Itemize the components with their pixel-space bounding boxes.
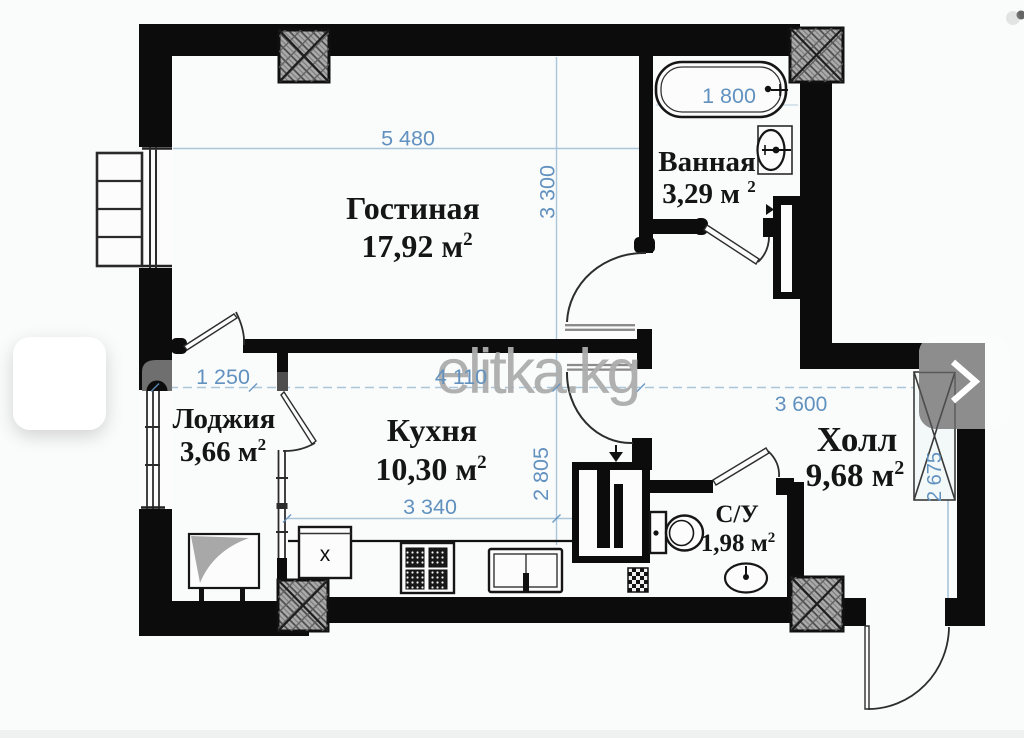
svg-text:1 250: 1 250 — [196, 365, 250, 389]
svg-text:2 805: 2 805 — [529, 447, 553, 501]
svg-text:3 600: 3 600 — [775, 393, 828, 416]
svg-text:17,92 м2: 17,92 м2 — [361, 228, 472, 264]
svg-text:5 480: 5 480 — [381, 127, 435, 151]
svg-text:Гостиная: Гостиная — [346, 190, 480, 226]
svg-text:1,98 м2: 1,98 м2 — [701, 530, 776, 557]
svg-text:Лоджия: Лоджия — [173, 403, 276, 435]
svg-text:4 110: 4 110 — [435, 365, 487, 389]
svg-text:1 800: 1 800 — [702, 84, 756, 108]
svg-text:3 340: 3 340 — [403, 495, 457, 519]
svg-text:Ванная: Ванная — [658, 146, 755, 178]
svg-text:С/У: С/У — [715, 501, 758, 528]
svg-text:2 675: 2 675 — [924, 452, 946, 502]
svg-text:Холл: Холл — [817, 420, 898, 459]
svg-text:3,29 м 2: 3,29 м 2 — [662, 177, 756, 210]
svg-text:3 300: 3 300 — [536, 165, 560, 219]
svg-text:3,66 м2: 3,66 м2 — [180, 435, 266, 468]
svg-text:10,30 м2: 10,30 м2 — [375, 451, 486, 487]
svg-text:x: x — [320, 543, 331, 566]
svg-text:Кухня: Кухня — [387, 412, 477, 448]
svg-text:9,68 м2: 9,68 м2 — [806, 457, 904, 494]
